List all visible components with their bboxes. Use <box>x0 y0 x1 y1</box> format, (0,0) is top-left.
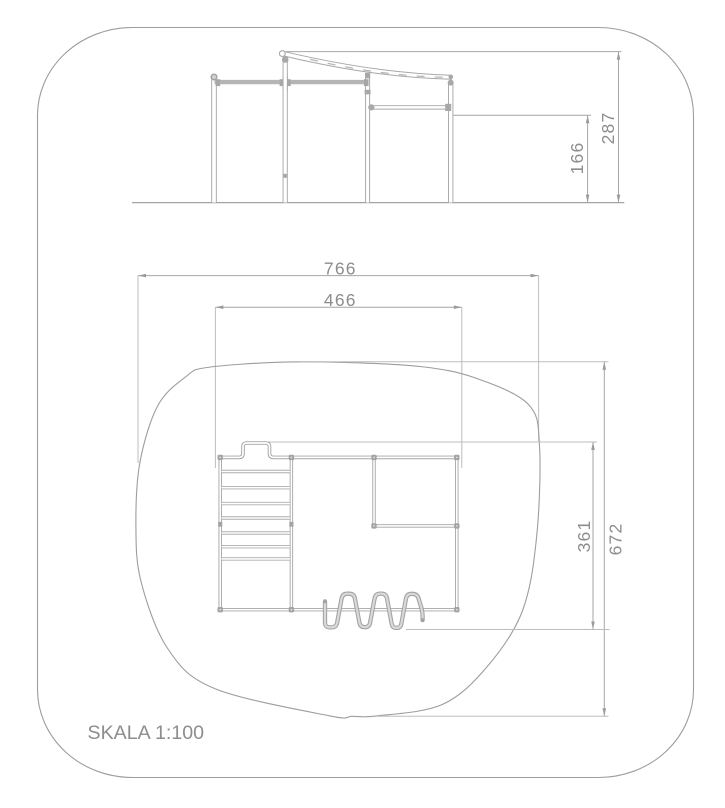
svg-text:361: 361 <box>574 520 594 553</box>
svg-text:SKALA 1:100: SKALA 1:100 <box>88 722 205 744</box>
svg-text:672: 672 <box>606 523 626 556</box>
svg-text:287: 287 <box>598 112 618 145</box>
svg-text:466: 466 <box>324 290 357 310</box>
svg-text:166: 166 <box>567 142 587 175</box>
svg-text:766: 766 <box>324 259 357 279</box>
